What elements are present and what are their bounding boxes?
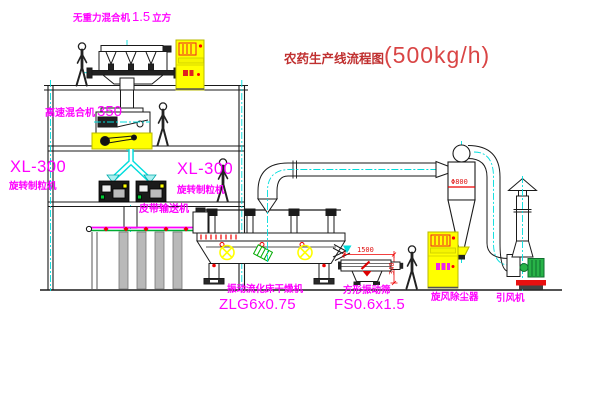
y-chute [113, 149, 149, 179]
cyclone-diameter-dim: Φ800 [451, 179, 468, 186]
granulator-right-model: XL-300 [177, 161, 233, 178]
granulator-left-model: XL-300 [10, 159, 66, 176]
control-cabinet-1 [176, 40, 204, 90]
gravity-mixer-name: 无重力混合机 [73, 14, 130, 24]
gravity-mixer-size: 1.5 [132, 10, 150, 23]
dryer-model-label: ZLG6x0.75 [219, 297, 296, 312]
gravity-mixer-unit: 立方 [152, 14, 171, 24]
diagram-title-capacity: (500kg/h) [384, 42, 490, 68]
high-speed-mixer-model: 350 [97, 104, 122, 119]
screen-name-label: 方形振动筛 [343, 286, 391, 296]
diagram-title: 农药生产线流程图(500kg/h) [284, 44, 490, 67]
gravity-mixer-label: 无重力混合机 1.5 立方 [73, 10, 171, 23]
screen-height-dim: 340 [389, 262, 396, 275]
screen-length-dim: 1500 [357, 247, 374, 254]
control-cabinet-2 [428, 232, 458, 288]
granulator-left-name: 旋转制粒机 [9, 182, 57, 192]
high-speed-mixer-name: 高速混合机 [45, 109, 95, 119]
belt-conveyor-drawing [86, 226, 206, 289]
granulator-right-name: 旋转制粒机 [177, 186, 225, 196]
pesticide-line-flow-diagram: 无重力混合机 1.5 立方 高速混合机 350 XL-300 旋转制粒机 XL-… [0, 0, 600, 403]
worker-figure [77, 43, 87, 86]
high-speed-mixer-label: 高速混合机 350 [45, 104, 122, 119]
cyclone-label: 旋风除尘器 [431, 293, 479, 303]
diagram-title-cn: 农药生产线流程图 [284, 52, 384, 66]
dryer-name-label: 振动流化床干燥机 [227, 285, 303, 295]
screen-model-label: FS0.6x1.5 [334, 297, 405, 312]
worker-figure [407, 246, 417, 289]
worker-figure [158, 103, 168, 146]
belt-conveyor-label: 皮带输送机 [139, 205, 189, 215]
fan-label: 引风机 [496, 294, 525, 304]
fluid-bed-dryer-drawing [193, 208, 350, 284]
